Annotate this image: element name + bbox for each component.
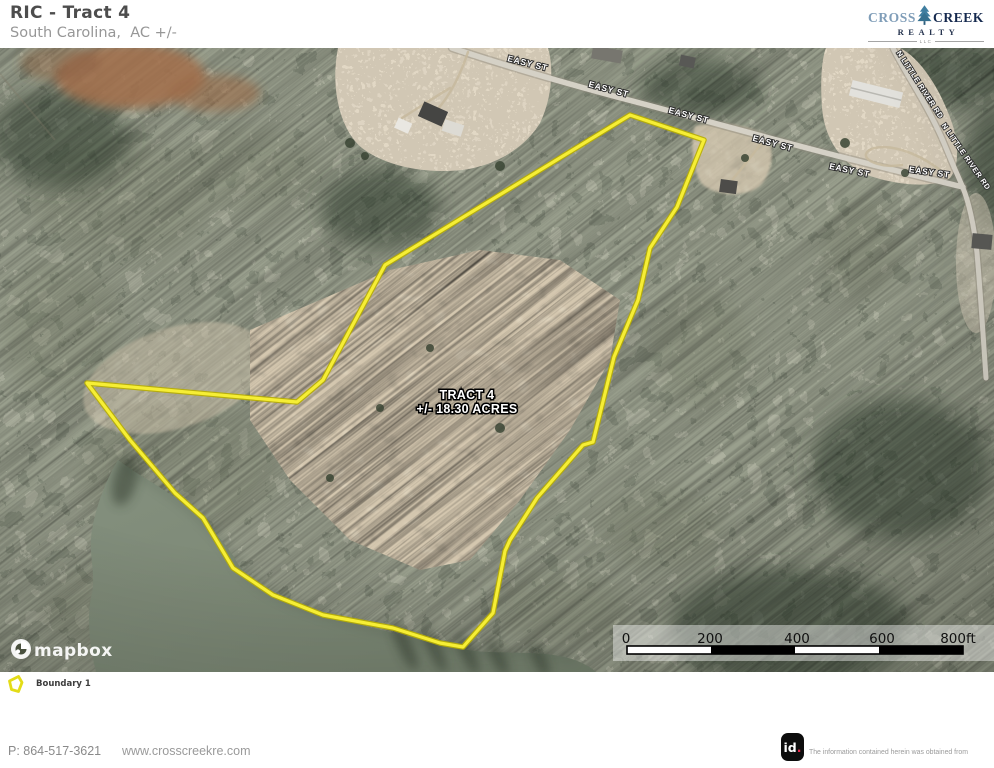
legend-label: Boundary 1 bbox=[36, 679, 91, 689]
scale-bar: 0 200 400 600 800ft bbox=[613, 625, 994, 661]
pine-tree-icon bbox=[917, 5, 932, 26]
svg-text:600: 600 bbox=[869, 631, 895, 647]
logo-cross-text: CROSS bbox=[868, 10, 916, 26]
satellite-map: TRACT 4 +/- 18.30 ACRES EASY ST EASY ST … bbox=[0, 48, 994, 672]
svg-text:mapbox: mapbox bbox=[34, 641, 113, 661]
logo-realty-text: REALTY bbox=[873, 27, 984, 37]
svg-text:800ft: 800ft bbox=[940, 631, 976, 647]
landid-attribution: id. The information contained herein was… bbox=[781, 733, 979, 768]
phone-number: P: 864-517-3621 bbox=[8, 744, 101, 758]
logo-llc-text: LLC bbox=[868, 39, 984, 44]
crosscreek-realty-logo: CROSS CREEK REALTY LLC bbox=[868, 5, 984, 44]
disclaimer-text: The information contained herein was obt… bbox=[809, 733, 979, 768]
website-link: www.crosscreekre.com bbox=[122, 744, 251, 758]
logo-creek-text: CREEK bbox=[933, 10, 984, 26]
svg-text:+/- 18.30 ACRES: +/- 18.30 ACRES bbox=[417, 402, 518, 416]
report-page: RIC - Tract 4 South Carolina, AC +/- CRO… bbox=[0, 0, 994, 768]
svg-text:0: 0 bbox=[622, 631, 631, 647]
svg-text:400: 400 bbox=[784, 631, 810, 647]
boundary-legend-icon bbox=[6, 674, 25, 695]
map-canvas[interactable]: TRACT 4 +/- 18.30 ACRES EASY ST EASY ST … bbox=[0, 48, 994, 672]
page-title: RIC - Tract 4 bbox=[10, 3, 130, 23]
page-subtitle: South Carolina, AC +/- bbox=[10, 25, 177, 41]
landid-logo: id. bbox=[781, 733, 804, 761]
svg-text:TRACT 4: TRACT 4 bbox=[440, 388, 495, 402]
legend: Boundary 1 bbox=[6, 672, 91, 696]
report-header: RIC - Tract 4 South Carolina, AC +/- CRO… bbox=[0, 0, 994, 48]
svg-text:200: 200 bbox=[697, 631, 723, 647]
